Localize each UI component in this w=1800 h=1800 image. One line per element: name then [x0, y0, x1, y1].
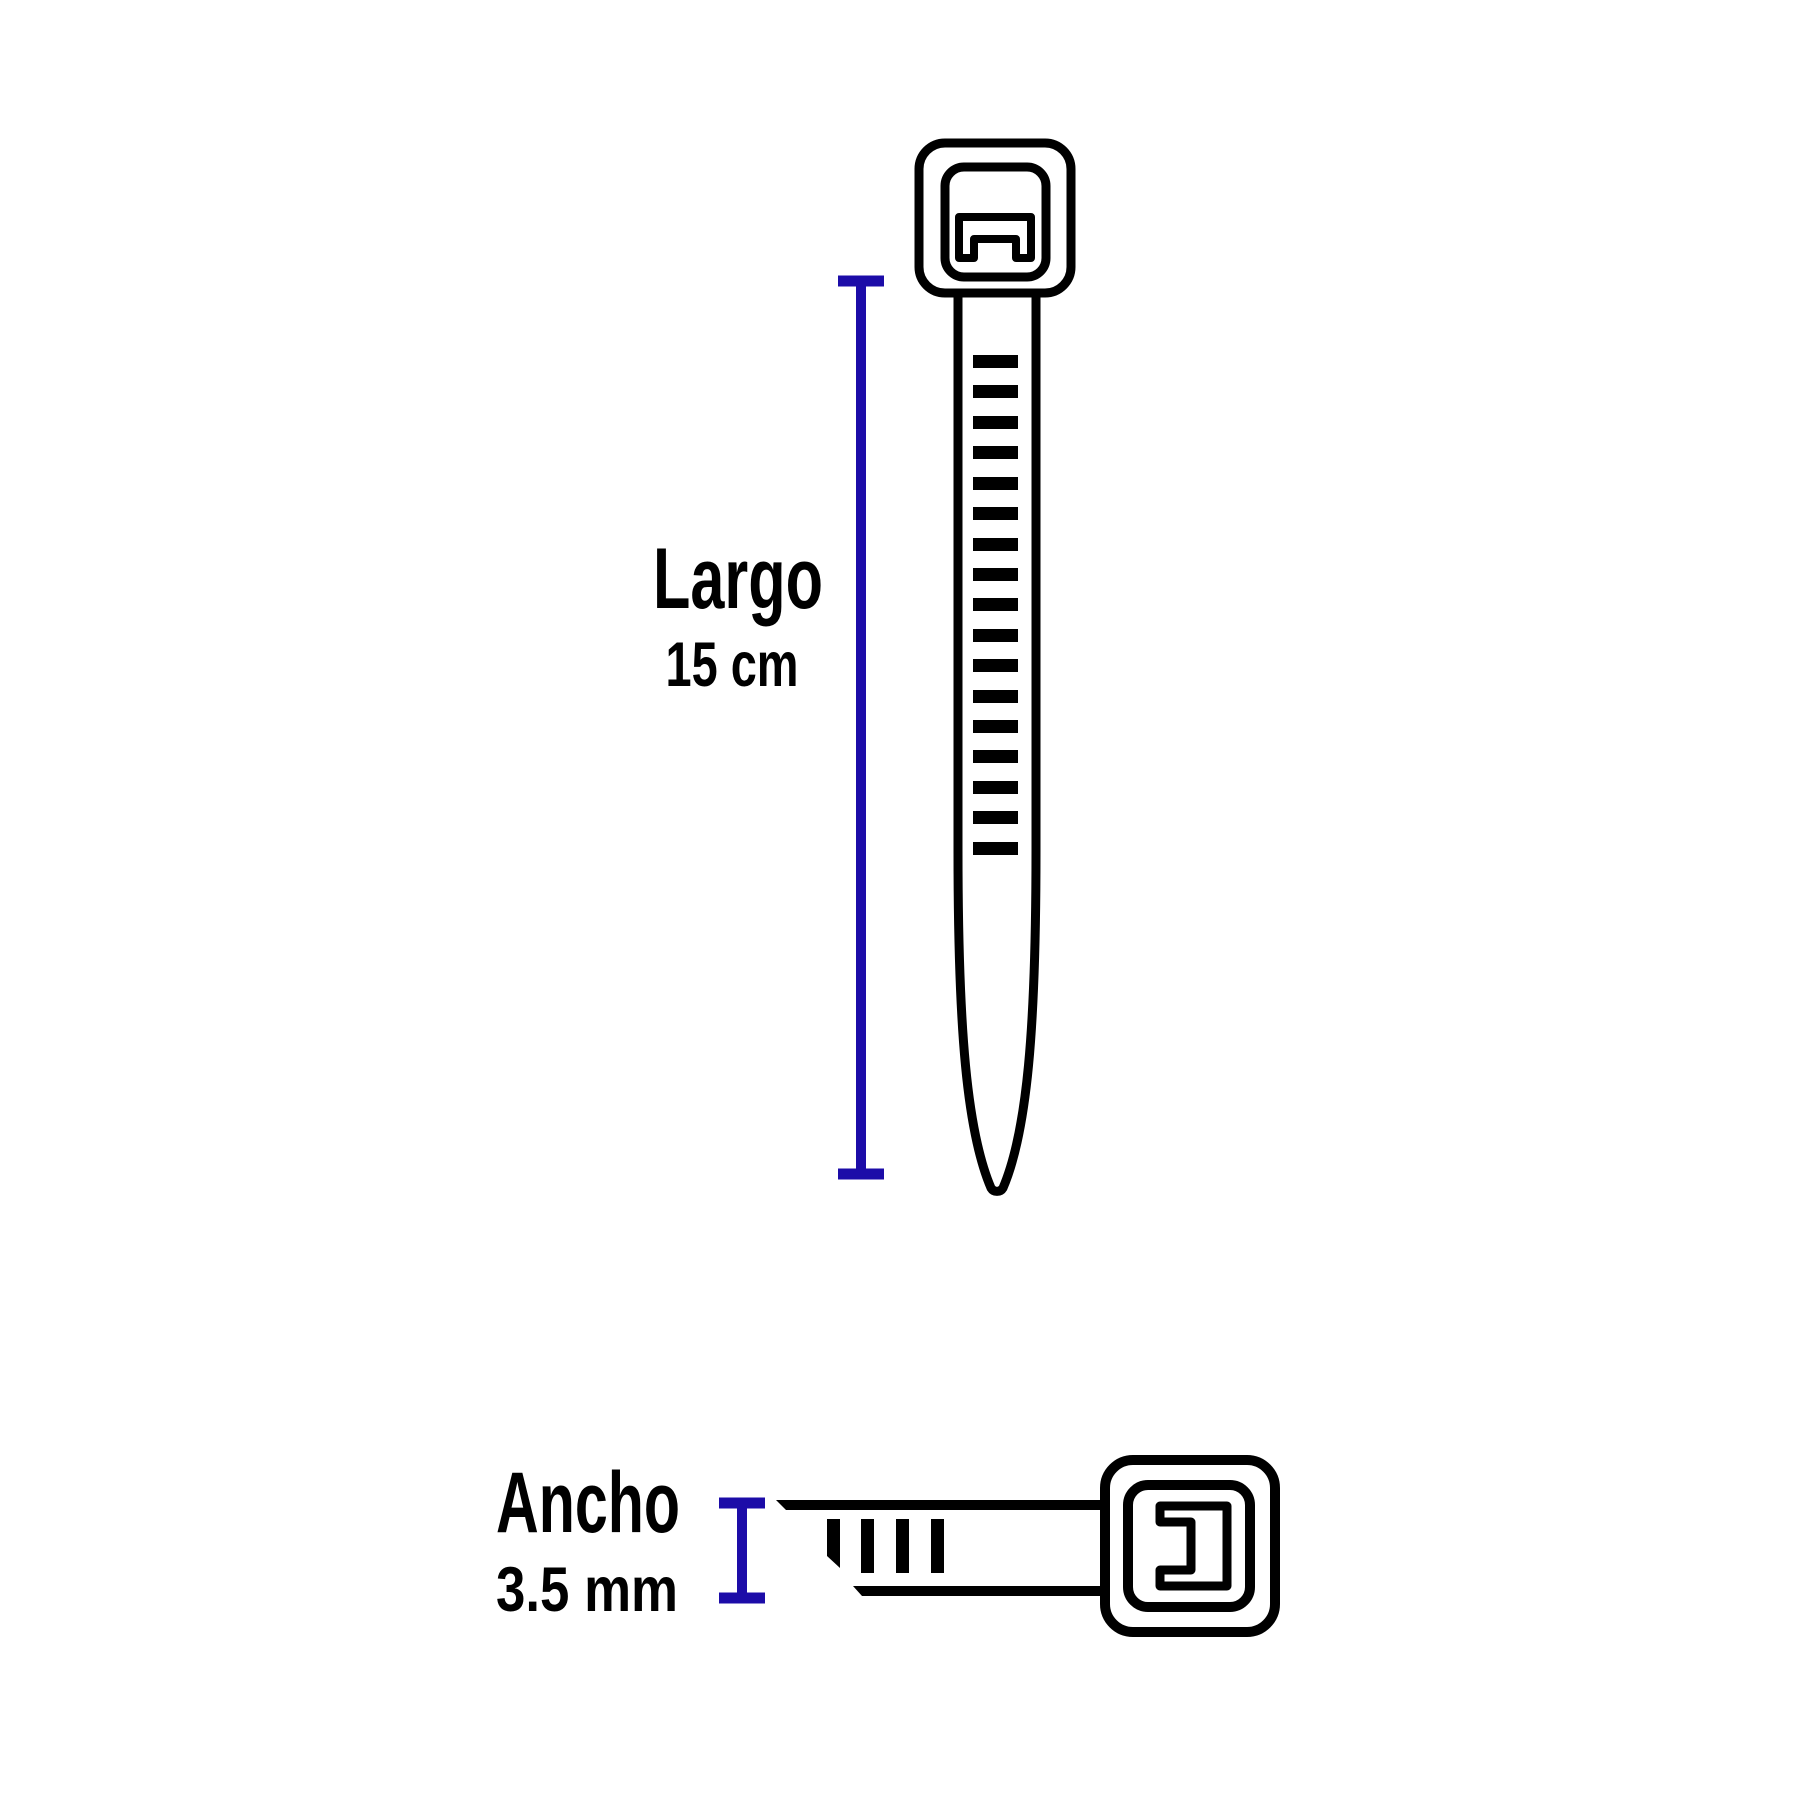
vertical-cable-tie — [919, 143, 1071, 1191]
strap-teeth-horizontal — [827, 1519, 944, 1573]
horizontal-cable-tie — [776, 1460, 1275, 1632]
length-label: Largo — [653, 531, 823, 627]
length-value: 15 cm — [666, 630, 799, 700]
strap-bottom-edge — [853, 1586, 1115, 1596]
diagram-svg: Largo 15 cm — [0, 0, 1800, 1800]
width-label: Ancho — [496, 1455, 680, 1551]
width-value: 3.5 mm — [496, 1555, 678, 1625]
tie-head-bottom — [1105, 1460, 1275, 1632]
strap-top-edge — [776, 1500, 1115, 1510]
cable-tie-dimension-diagram: Largo 15 cm — [0, 0, 1800, 1800]
length-dimension — [838, 281, 884, 1174]
width-dimension — [719, 1503, 765, 1598]
tie-head-top — [919, 143, 1071, 293]
